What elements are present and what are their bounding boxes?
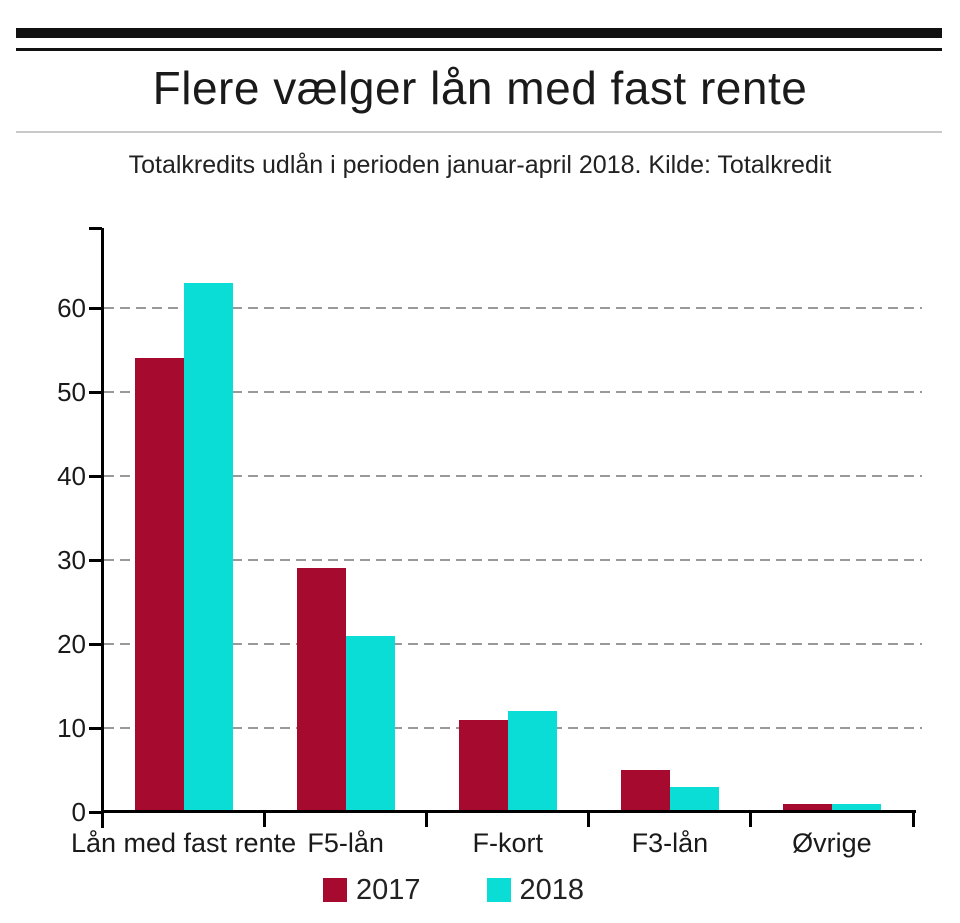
x-axis-tick: [912, 813, 915, 827]
legend-swatch-2018: [487, 878, 511, 902]
x-axis-tick: [749, 813, 752, 827]
bar-2017: [297, 568, 346, 812]
y-axis-tick: [89, 475, 102, 478]
legend-label: 2018: [520, 875, 585, 905]
chart-page: Flere vælger lån med fast rente Totalkre…: [0, 0, 960, 923]
bar-2018: [508, 711, 557, 812]
bar-2018: [346, 636, 395, 812]
x-axis-tick: [101, 813, 104, 827]
y-axis-tick-label: 50: [0, 377, 86, 407]
y-axis-tick-label: 30: [0, 545, 86, 575]
x-axis-tick: [263, 813, 266, 827]
y-axis-tick-label: 20: [0, 629, 86, 659]
y-axis-tick: [89, 643, 102, 646]
bar-2017: [135, 358, 184, 812]
x-axis-line: [101, 810, 916, 813]
legend-label: 2017: [356, 875, 421, 905]
x-axis-tick: [587, 813, 590, 827]
bar-2017: [459, 720, 508, 812]
y-axis-tick: [89, 559, 102, 562]
y-axis-tick-label: 0: [0, 797, 86, 827]
y-axis-tick: [89, 307, 102, 310]
legend-item-2017: 2017: [323, 875, 421, 905]
y-axis-top-cap: [89, 227, 102, 230]
y-axis-tick-label: 60: [0, 293, 86, 323]
y-axis-tick: [89, 391, 102, 394]
legend-item-2018: 2018: [487, 875, 585, 905]
legend: 20172018: [323, 875, 584, 905]
y-axis-tick: [89, 727, 102, 730]
bar-2017: [621, 770, 670, 812]
x-axis-label: Øvrige: [682, 827, 960, 859]
legend-swatch-2017: [323, 878, 347, 902]
y-axis-tick-label: 40: [0, 461, 86, 491]
y-axis-tick-label: 10: [0, 713, 86, 743]
bar-chart: Lån med fast renteF5-lånF-kortF3-lånØvri…: [0, 0, 960, 923]
bar-2018: [184, 283, 233, 812]
bar-2018: [670, 787, 719, 812]
y-axis-line: [101, 228, 104, 828]
x-axis-tick: [425, 813, 428, 827]
